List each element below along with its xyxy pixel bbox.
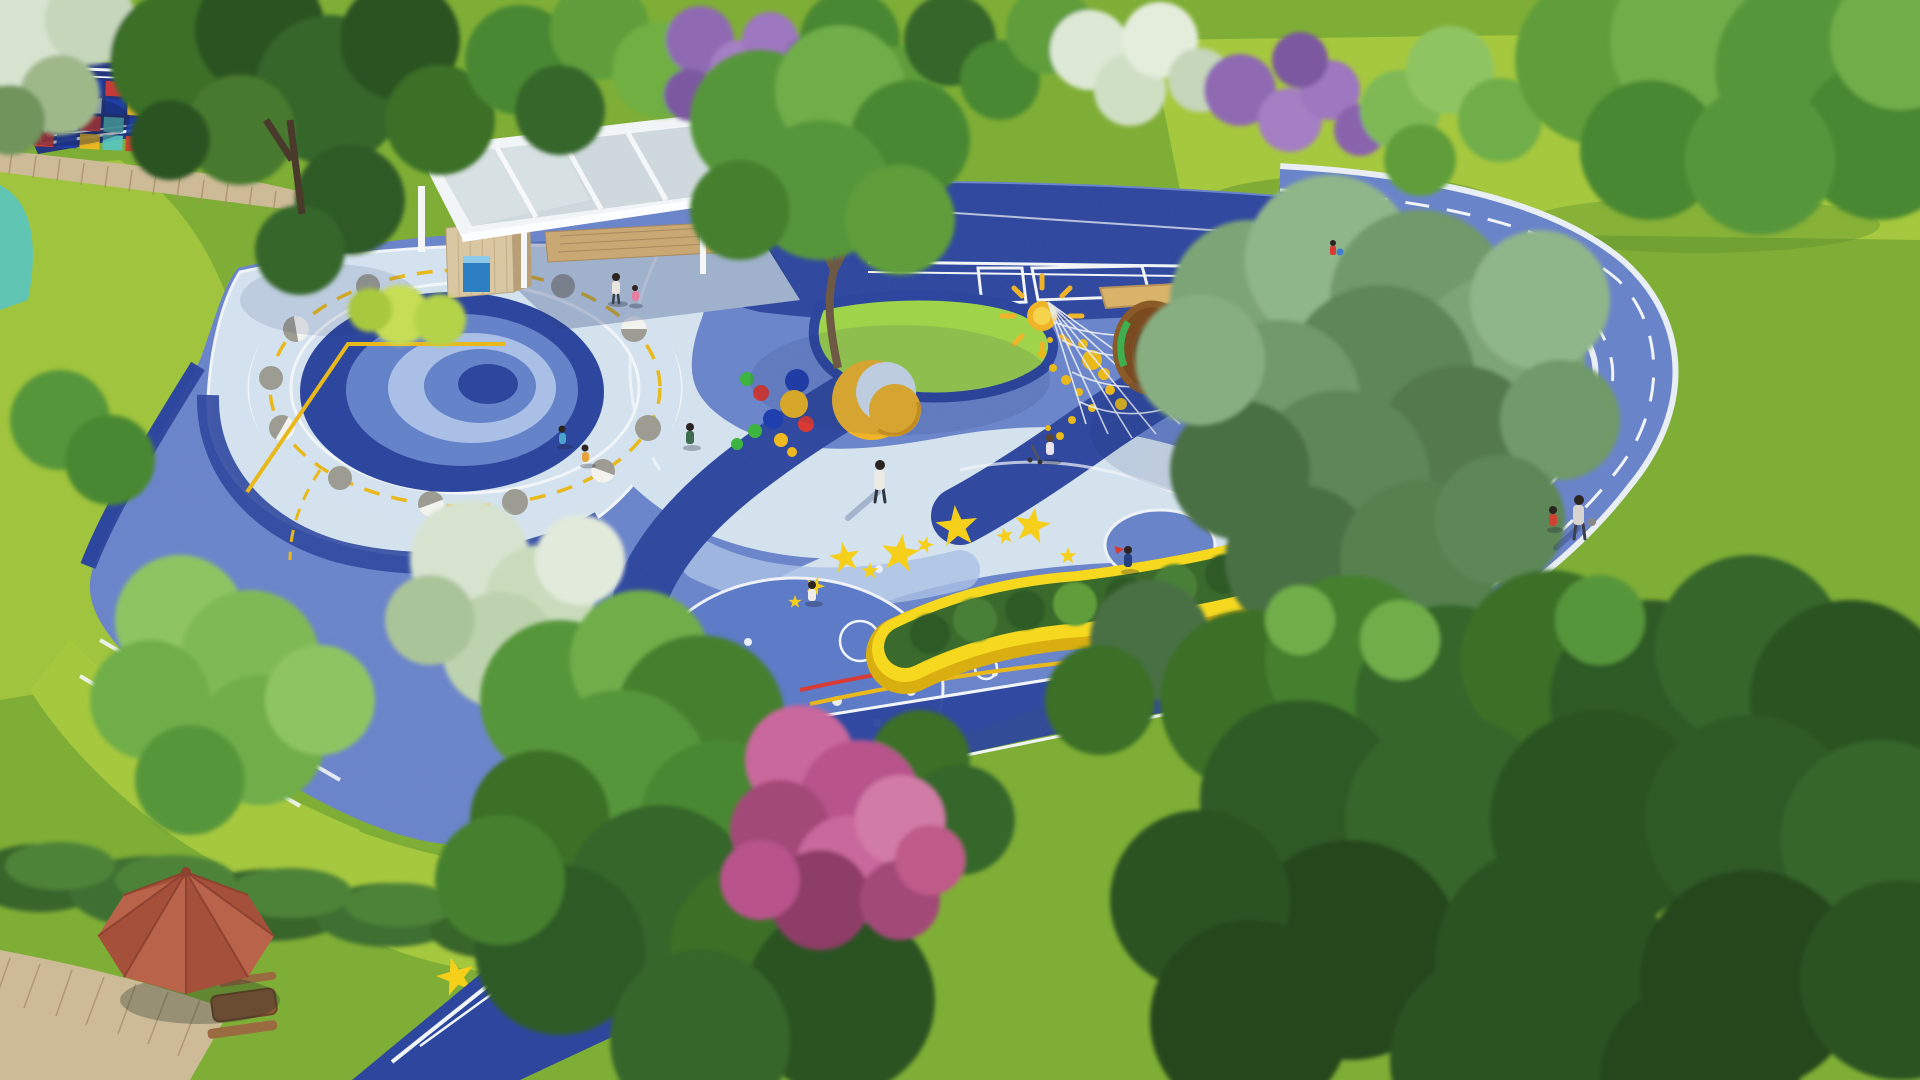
pavilion-column bbox=[521, 226, 527, 288]
kiosk-poster-sky bbox=[463, 256, 490, 263]
color-dot bbox=[787, 447, 797, 457]
color-dot bbox=[731, 438, 743, 450]
trees-bottom-right bbox=[1045, 555, 1920, 1080]
color-dot bbox=[748, 424, 762, 438]
sun-trail-dot bbox=[1056, 432, 1064, 440]
moon-decal bbox=[328, 466, 352, 490]
moon-decal bbox=[259, 366, 283, 390]
sun-trail-dot bbox=[1061, 375, 1071, 385]
moon-decal bbox=[635, 415, 661, 441]
pavilion-column bbox=[418, 186, 425, 252]
sun-trail-dot bbox=[1038, 350, 1046, 358]
sun-trail-dot bbox=[1049, 364, 1057, 372]
sun-trail-dot bbox=[1068, 416, 1076, 424]
color-dot bbox=[774, 433, 788, 447]
mound-summit bbox=[458, 364, 518, 404]
sun-trail-dot bbox=[1047, 337, 1053, 343]
sun-core bbox=[1033, 307, 1051, 325]
moon-decal bbox=[502, 489, 528, 515]
scene-svg bbox=[0, 0, 1920, 1080]
playground-aerial-render bbox=[0, 0, 1920, 1080]
bubble-dot bbox=[744, 638, 752, 646]
umbrella-finial bbox=[181, 867, 191, 877]
sun-trail-dot bbox=[1045, 425, 1051, 431]
